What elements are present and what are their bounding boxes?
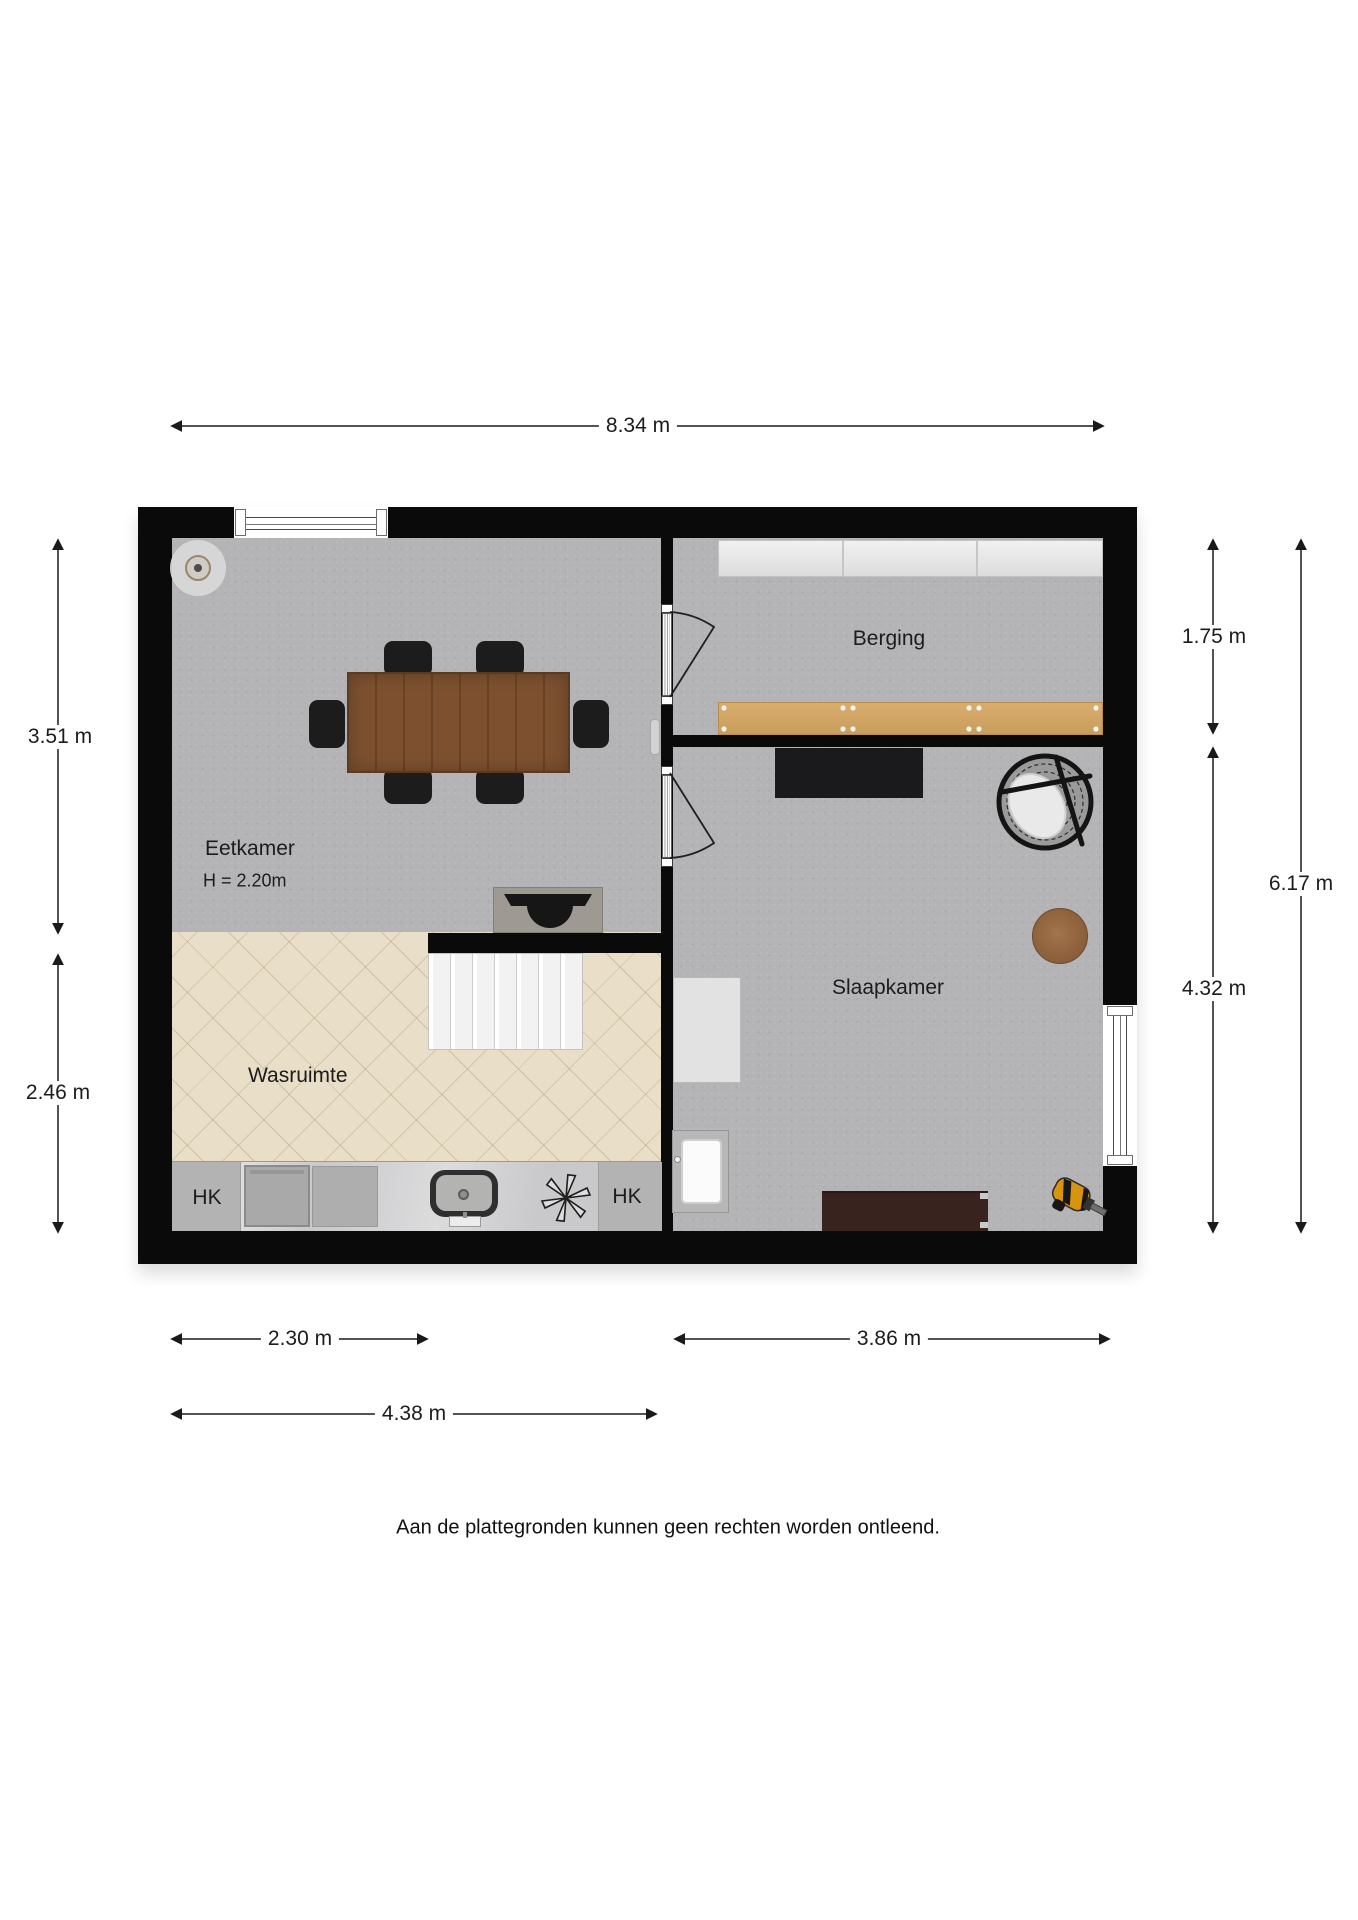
dimension-label-width-total: 8.34 m [599,414,677,438]
room-height-note: H = 2.20m [203,871,287,892]
workbench-dots [721,705,1098,731]
dimension-label-bottom-inner-left: 2.30 m [261,1327,339,1351]
closet-label-hk-left: HK [192,1186,221,1210]
room-label-berging: Berging [853,627,925,651]
dimension-label-left-upper: 3.51 m [21,725,99,749]
closet-label-hk-right: HK [612,1185,641,1209]
room-label-slaapkamer: Slaapkamer [832,976,944,1000]
door-swing-arc [670,612,714,858]
dimension-label-left-lower: 2.46 m [19,1081,97,1105]
annotations-overlay [0,0,1358,1920]
disclaimer-text: Aan de plattegronden kunnen geen rechten… [396,1517,940,1540]
dimension-lines [58,426,1301,1414]
floor-plan-page: Eetkamer H = 2.20m Wasruimte Berging Sla… [0,0,1358,1920]
dimension-label-right-lower: 4.32 m [1175,977,1253,1001]
room-label-wasruimte: Wasruimte [248,1064,348,1088]
room-label-eetkamer: Eetkamer [205,837,295,861]
dimension-label-right-total: 6.17 m [1262,872,1340,896]
dimension-label-bottom-inner-right: 3.86 m [850,1327,928,1351]
dimension-label-bottom-outer: 4.38 m [375,1402,453,1426]
dimension-label-right-upper: 1.75 m [1175,625,1253,649]
